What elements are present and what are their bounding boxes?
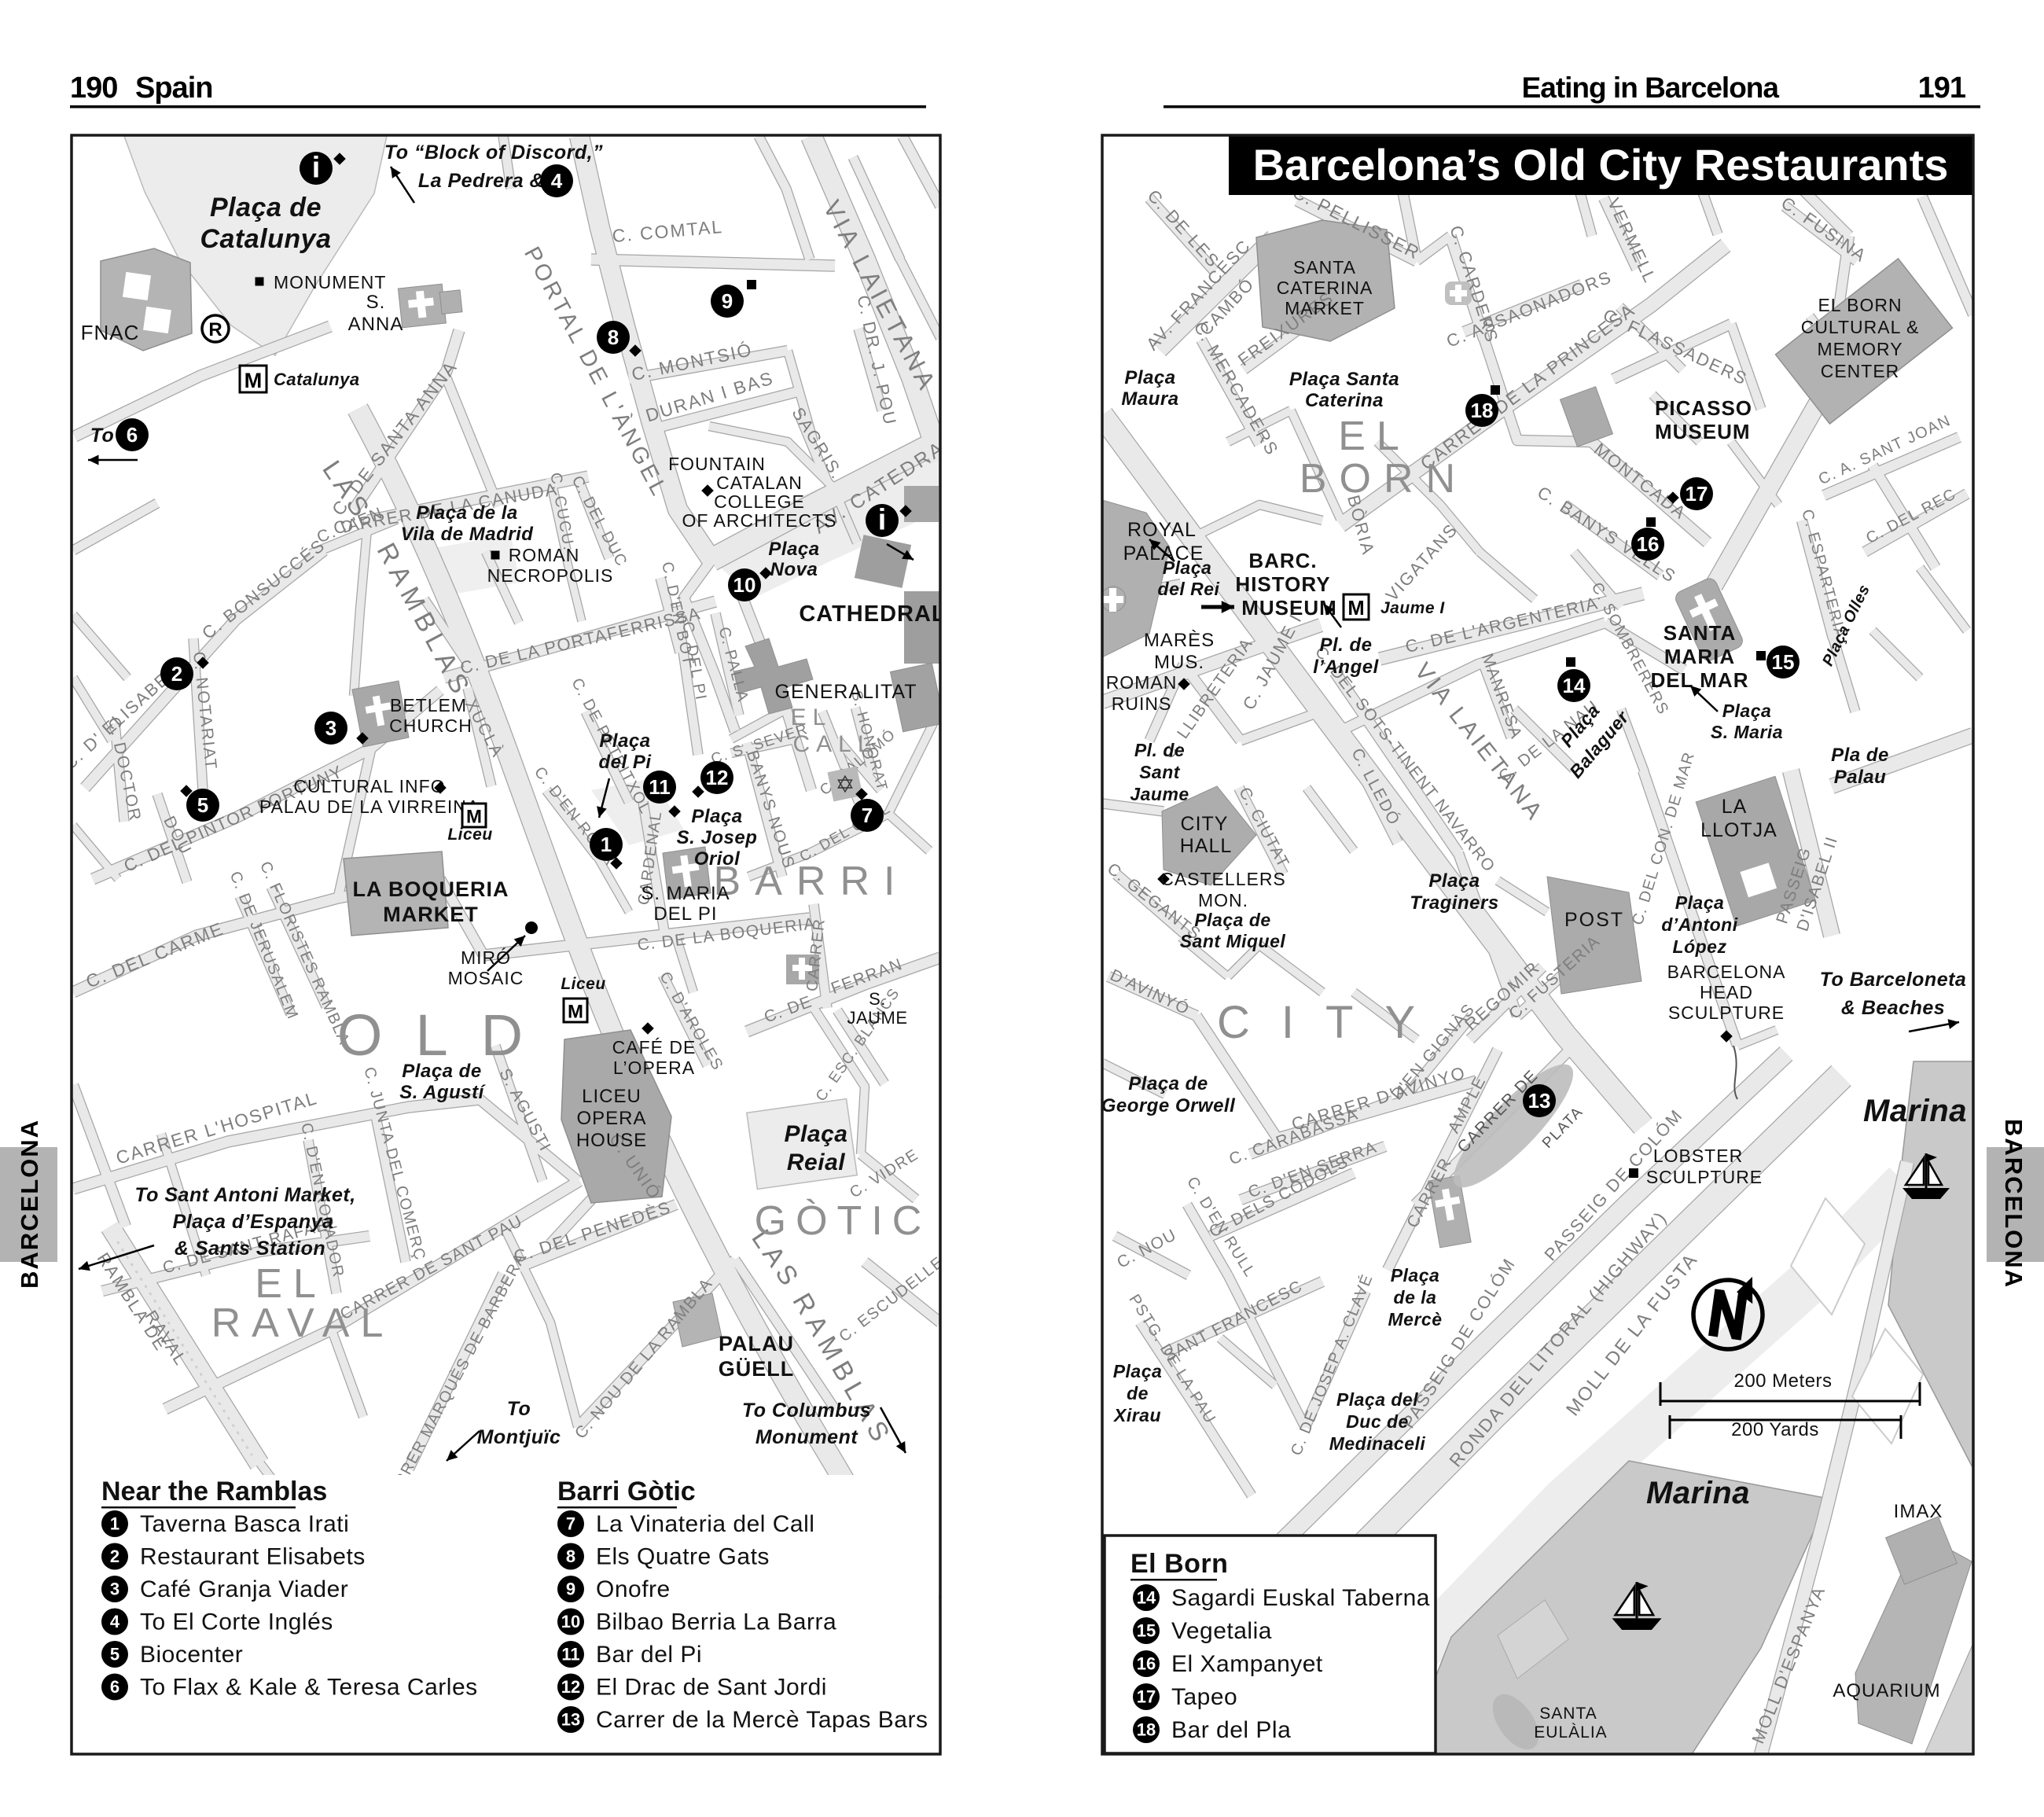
svg-text:RUINS: RUINS <box>1112 693 1172 714</box>
svg-text:Eating in Barcelona: Eating in Barcelona <box>1522 72 1780 104</box>
svg-text:Vegetalia: Vegetalia <box>1171 1618 1272 1644</box>
svg-text:Duc de: Duc de <box>1346 1411 1409 1432</box>
svg-text:Plaça de: Plaça de <box>1128 1073 1208 1094</box>
svg-text:CALL: CALL <box>792 731 877 757</box>
svg-text:Liceu: Liceu <box>447 826 492 844</box>
svg-text:MUS.: MUS. <box>1154 652 1204 673</box>
svg-text:5: 5 <box>110 1645 119 1664</box>
svg-text:M: M <box>466 807 482 828</box>
svg-text:MUSEUM: MUSEUM <box>1241 596 1337 620</box>
svg-text:OLD: OLD <box>337 1002 556 1068</box>
svg-text:MEMORY: MEMORY <box>1817 339 1902 359</box>
svg-text:MUSEUM: MUSEUM <box>1655 420 1751 443</box>
svg-text:Sant: Sant <box>1139 762 1181 782</box>
svg-text:CATHEDRAL: CATHEDRAL <box>799 601 946 627</box>
svg-text:EL BORN: EL BORN <box>1818 295 1902 315</box>
svg-text:CASTELLERS: CASTELLERS <box>1160 869 1286 889</box>
svg-text:CAFÉ DE: CAFÉ DE <box>612 1037 697 1057</box>
svg-text:M: M <box>568 1002 583 1023</box>
svg-text:✡: ✡ <box>835 772 855 798</box>
svg-text:Marina: Marina <box>1863 1094 1967 1128</box>
svg-text:To: To <box>90 425 115 447</box>
svg-text:FOUNTAIN: FOUNTAIN <box>668 454 766 474</box>
svg-text:Sant Miquel: Sant Miquel <box>1180 931 1286 951</box>
svg-text:2: 2 <box>171 662 182 686</box>
svg-text:Tapeo: Tapeo <box>1171 1684 1237 1710</box>
svg-text:SANTA: SANTA <box>1664 621 1737 645</box>
svg-text:Plaça Santa: Plaça Santa <box>1289 369 1399 390</box>
svg-text:7: 7 <box>566 1514 575 1534</box>
svg-text:To Barceloneta: To Barceloneta <box>1820 969 1967 991</box>
svg-text:Pla de: Pla de <box>1831 745 1889 766</box>
svg-text:El Drac de Sant Jordi: El Drac de Sant Jordi <box>596 1675 827 1701</box>
svg-text:MOSAIC: MOSAIC <box>448 968 524 988</box>
svg-text:CENTER: CENTER <box>1821 361 1900 381</box>
svg-text:Vila de Madrid: Vila de Madrid <box>401 524 535 545</box>
svg-text:d’Antoni: d’Antoni <box>1661 914 1737 935</box>
svg-text:SANTA: SANTA <box>1539 1705 1597 1723</box>
svg-text:BARCELONA: BARCELONA <box>16 1119 43 1289</box>
svg-text:MARIA: MARIA <box>1664 645 1735 668</box>
svg-text:R: R <box>208 319 222 340</box>
svg-text:Liceu: Liceu <box>561 975 605 993</box>
svg-text:Jaume I: Jaume I <box>1380 599 1445 617</box>
svg-text:ROMAN: ROMAN <box>509 545 580 565</box>
svg-text:PALAU DE LA VIRREINA: PALAU DE LA VIRREINA <box>259 796 480 817</box>
svg-text:Barri Gòtic: Barri Gòtic <box>557 1477 696 1506</box>
svg-text:GÜELL: GÜELL <box>719 1357 795 1381</box>
svg-text:S.: S. <box>869 989 886 1009</box>
svg-text:13: 13 <box>1528 1089 1551 1113</box>
svg-text:OF ARCHITECTS: OF ARCHITECTS <box>682 510 836 531</box>
svg-text:S. Maria: S. Maria <box>1711 722 1783 742</box>
svg-text:Plaça de la: Plaça de la <box>416 502 518 524</box>
svg-text:Plaça de: Plaça de <box>402 1061 481 1082</box>
svg-text:To Sant Antoni Market,: To Sant Antoni Market, <box>134 1184 355 1206</box>
svg-text:Nova: Nova <box>770 559 818 580</box>
svg-text:5: 5 <box>197 793 208 817</box>
svg-text:PALAU: PALAU <box>719 1332 794 1355</box>
svg-text:ROMAN: ROMAN <box>1106 672 1178 693</box>
svg-text:NECROPOLIS: NECROPOLIS <box>487 565 614 586</box>
svg-text:EL: EL <box>791 704 833 730</box>
svg-text:GÒTIC: GÒTIC <box>755 1198 932 1244</box>
svg-text:Plaça: Plaça <box>1163 557 1212 578</box>
svg-text:Plaça: Plaça <box>1124 367 1175 388</box>
svg-text:La Pedrera &: La Pedrera & <box>418 170 544 192</box>
svg-text:18: 18 <box>1471 399 1494 422</box>
svg-text:EL: EL <box>1338 414 1410 459</box>
svg-text:Mercè: Mercè <box>1388 1309 1443 1330</box>
svg-text:Catalunya: Catalunya <box>274 370 360 389</box>
svg-text:MONUMENT: MONUMENT <box>274 272 386 292</box>
svg-text:BARC.: BARC. <box>1248 549 1317 572</box>
svg-text:1: 1 <box>110 1514 119 1534</box>
svg-text:Bar del Pla: Bar del Pla <box>1171 1717 1291 1743</box>
svg-text:IMAX: IMAX <box>1894 1501 1943 1522</box>
svg-text:& Sants Station: & Sants Station <box>175 1238 325 1260</box>
svg-text:Bar del Pi: Bar del Pi <box>596 1642 702 1668</box>
svg-text:George Orwell: George Orwell <box>1101 1095 1236 1116</box>
svg-text:FNAC: FNAC <box>81 321 140 344</box>
svg-text:JAUME: JAUME <box>847 1008 907 1028</box>
svg-text:AQUARIUM: AQUARIUM <box>1833 1680 1940 1701</box>
svg-text:11: 11 <box>561 1645 579 1664</box>
svg-text:Carrer de la Mercè Tapas Bars: Carrer de la Mercè Tapas Bars <box>596 1707 928 1733</box>
svg-text:L’OPERA: L’OPERA <box>613 1057 695 1078</box>
svg-text:S. MARIA: S. MARIA <box>641 883 730 904</box>
svg-text:LLOTJA: LLOTJA <box>1700 819 1777 841</box>
svg-text:17: 17 <box>1137 1687 1156 1707</box>
svg-text:CITY: CITY <box>1217 997 1447 1048</box>
svg-text:Caterina: Caterina <box>1305 390 1384 411</box>
svg-text:11: 11 <box>649 775 671 799</box>
svg-text:Pl. de: Pl. de <box>1134 740 1185 760</box>
svg-text:HISTORY: HISTORY <box>1235 572 1330 596</box>
svg-text:190: 190 <box>70 72 117 105</box>
svg-text:3: 3 <box>110 1580 119 1599</box>
svg-text:CATALAN: CATALAN <box>716 473 803 493</box>
svg-text:To: To <box>507 1398 531 1420</box>
svg-text:Café Granja Viader: Café Granja Viader <box>140 1576 348 1602</box>
svg-text:HEAD: HEAD <box>1700 982 1753 1002</box>
svg-text:16: 16 <box>1137 1654 1156 1674</box>
svg-text:Maura: Maura <box>1121 388 1178 410</box>
svg-text:LOBSTER: LOBSTER <box>1653 1146 1743 1166</box>
svg-text:200 Yards: 200 Yards <box>1731 1419 1819 1440</box>
svg-text:Plaça d’Espanya: Plaça d’Espanya <box>173 1211 334 1233</box>
svg-text:Pl. de: Pl. de <box>1319 634 1372 656</box>
svg-text:Oriol: Oriol <box>694 848 741 870</box>
svg-text:ANNA: ANNA <box>348 314 404 335</box>
svg-text:POST: POST <box>1564 909 1624 931</box>
svg-text:BETLEM: BETLEM <box>390 695 467 715</box>
svg-text:OPERA: OPERA <box>576 1108 646 1129</box>
svg-text:191: 191 <box>1918 72 1966 105</box>
svg-text:To “Block of Discord,”: To “Block of Discord,” <box>384 142 603 164</box>
svg-text:Reial: Reial <box>787 1149 845 1175</box>
svg-text:MARÈS: MARÈS <box>1144 630 1215 651</box>
svg-text:9: 9 <box>722 289 733 313</box>
svg-text:HALL: HALL <box>1180 835 1233 857</box>
svg-text:S.: S. <box>366 292 386 313</box>
svg-text:12: 12 <box>706 766 729 789</box>
svg-text:MARKET: MARKET <box>1285 298 1365 318</box>
svg-text:7: 7 <box>862 804 873 827</box>
svg-text:15: 15 <box>1772 650 1795 674</box>
svg-text:PICASSO: PICASSO <box>1655 396 1752 420</box>
svg-text:del Pi: del Pi <box>598 752 652 773</box>
svg-text:SCULPTURE: SCULPTURE <box>1646 1167 1763 1187</box>
svg-text:COLLEGE: COLLEGE <box>714 491 805 512</box>
svg-text:Xirau: Xirau <box>1112 1405 1161 1425</box>
svg-text:13: 13 <box>561 1710 580 1730</box>
svg-text:Plaça: Plaça <box>1113 1361 1163 1381</box>
svg-text:Barcelona’s Old City Restauran: Barcelona’s Old City Restaurants <box>1253 140 1949 189</box>
svg-text:18: 18 <box>1137 1720 1156 1740</box>
svg-text:CULTURAL INFO: CULTURAL INFO <box>293 776 445 796</box>
svg-text:Catalunya: Catalunya <box>200 224 332 254</box>
svg-text:MIRÓ: MIRÓ <box>461 947 511 968</box>
svg-text:DEL MAR: DEL MAR <box>1651 668 1749 692</box>
svg-text:9: 9 <box>566 1580 575 1599</box>
svg-text:LICEU: LICEU <box>582 1086 642 1107</box>
svg-text:López: López <box>1673 936 1727 957</box>
svg-text:6: 6 <box>110 1677 119 1697</box>
svg-text:CITY: CITY <box>1181 813 1229 835</box>
svg-text:M: M <box>244 368 263 392</box>
svg-text:16: 16 <box>1637 532 1660 556</box>
svg-text:10: 10 <box>561 1612 580 1631</box>
svg-text:14: 14 <box>1563 674 1586 697</box>
svg-text:M: M <box>1347 598 1364 620</box>
svg-text:La Vinateria del Call: La Vinateria del Call <box>596 1511 814 1537</box>
svg-text:S. Agustí: S. Agustí <box>399 1082 486 1103</box>
svg-text:del Rei: del Rei <box>1158 579 1220 599</box>
svg-text:Plaça: Plaça <box>1391 1265 1440 1286</box>
svg-text:Plaça: Plaça <box>1722 701 1772 721</box>
svg-text:S. Josep: S. Josep <box>677 827 758 848</box>
svg-text:2: 2 <box>110 1547 119 1566</box>
svg-text:SANTA: SANTA <box>1293 257 1356 278</box>
svg-text:Plaça de: Plaça de <box>210 193 322 223</box>
svg-text:BARCELONA: BARCELONA <box>2000 1119 2027 1289</box>
svg-text:Traginers: Traginers <box>1410 892 1498 914</box>
svg-text:Biocenter: Biocenter <box>140 1642 243 1668</box>
svg-text:Spain: Spain <box>135 72 212 105</box>
svg-text:Plaça: Plaça <box>785 1121 848 1147</box>
svg-text:17: 17 <box>1686 482 1708 506</box>
svg-text:RAVAL: RAVAL <box>211 1300 395 1346</box>
svg-text:MARKET: MARKET <box>383 903 479 926</box>
svg-text:Plaça del: Plaça del <box>1336 1389 1418 1410</box>
svg-text:Onofre: Onofre <box>596 1576 671 1602</box>
svg-text:1: 1 <box>601 833 612 856</box>
svg-text:l’Angel: l’Angel <box>1313 657 1379 678</box>
svg-text:Montjuïc: Montjuïc <box>477 1426 561 1448</box>
svg-text:To Columbus: To Columbus <box>742 1400 871 1422</box>
svg-text:Plaça: Plaça <box>1428 870 1480 892</box>
svg-text:EULÀLIA: EULÀLIA <box>1534 1723 1607 1742</box>
svg-text:ROYAL: ROYAL <box>1127 519 1197 541</box>
svg-text:10: 10 <box>733 573 756 597</box>
svg-text:Plaça: Plaça <box>768 539 819 560</box>
svg-text:Els Quatre Gats: Els Quatre Gats <box>596 1544 770 1570</box>
svg-text:Taverna Basca Irati: Taverna Basca Irati <box>140 1511 349 1537</box>
svg-text:200 Meters: 200 Meters <box>1733 1370 1832 1392</box>
svg-text:MON.: MON. <box>1198 890 1248 910</box>
svg-text:BARCELONA: BARCELONA <box>1667 962 1786 982</box>
svg-text:DEL PI: DEL PI <box>653 903 717 925</box>
svg-text:Marina: Marina <box>1646 1476 1750 1510</box>
svg-text:i: i <box>878 504 887 537</box>
svg-text:Near the Ramblas: Near the Ramblas <box>101 1477 327 1506</box>
svg-text:4: 4 <box>110 1612 120 1631</box>
svg-text:El Xampanyet: El Xampanyet <box>1171 1651 1323 1677</box>
svg-text:BORN: BORN <box>1300 456 1468 502</box>
svg-text:LA BOQUERIA: LA BOQUERIA <box>353 877 509 901</box>
svg-text:15: 15 <box>1137 1621 1156 1641</box>
svg-text:14: 14 <box>1137 1588 1156 1608</box>
svg-text:12: 12 <box>561 1677 580 1697</box>
svg-text:Plaça de: Plaça de <box>1194 910 1270 930</box>
svg-text:Bilbao Berria La Barra: Bilbao Berria La Barra <box>596 1609 836 1635</box>
svg-text:Jaume: Jaume <box>1130 784 1189 804</box>
svg-text:Plaça: Plaça <box>1675 892 1725 913</box>
svg-text:8: 8 <box>608 326 619 349</box>
svg-text:Medinaceli: Medinaceli <box>1329 1433 1426 1454</box>
svg-text:To Flax & Kale & Teresa Carles: To Flax & Kale & Teresa Carles <box>140 1675 478 1701</box>
svg-text:BARRI: BARRI <box>714 859 910 904</box>
svg-text:HOUSE: HOUSE <box>576 1130 647 1151</box>
svg-text:Palau: Palau <box>1834 767 1887 788</box>
svg-text:4: 4 <box>551 169 563 193</box>
svg-text:GENERALITAT: GENERALITAT <box>775 681 917 703</box>
svg-text:CULTURAL &: CULTURAL & <box>1801 317 1920 337</box>
svg-text:de: de <box>1127 1383 1149 1403</box>
svg-text:Plaça: Plaça <box>599 730 650 752</box>
svg-text:SCULPTURE: SCULPTURE <box>1668 1002 1785 1023</box>
svg-text:El Born: El Born <box>1130 1549 1228 1579</box>
svg-text:3: 3 <box>325 716 336 740</box>
svg-text:Monument: Monument <box>755 1426 859 1448</box>
svg-text:To El Corte Inglés: To El Corte Inglés <box>140 1609 333 1635</box>
svg-text:8: 8 <box>566 1547 575 1566</box>
svg-text:Plaça: Plaça <box>691 806 742 827</box>
svg-text:CATERINA: CATERINA <box>1277 278 1373 298</box>
svg-text:Sagardi Euskal Taberna: Sagardi Euskal Taberna <box>1171 1585 1430 1611</box>
svg-text:de la: de la <box>1394 1287 1437 1308</box>
svg-text:Restaurant Elisabets: Restaurant Elisabets <box>140 1544 366 1570</box>
svg-text:& Beaches: & Beaches <box>1841 997 1945 1019</box>
svg-text:LA: LA <box>1722 796 1748 818</box>
svg-text:CHURCH: CHURCH <box>389 715 472 736</box>
svg-text:6: 6 <box>127 423 138 447</box>
svg-text:i: i <box>312 152 321 185</box>
